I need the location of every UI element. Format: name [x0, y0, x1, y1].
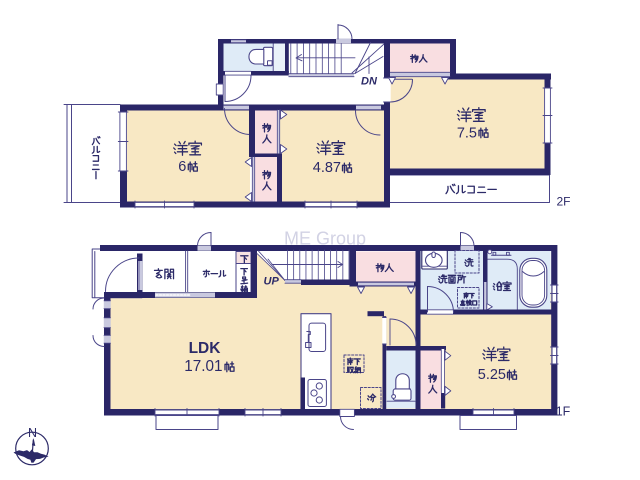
svg-text:N: N [28, 426, 37, 440]
svg-text:LDK: LDK [189, 340, 222, 357]
svg-text:1F: 1F [556, 404, 571, 418]
svg-text:DN: DN [361, 75, 378, 87]
svg-text:7.5: 7.5 [457, 126, 477, 142]
svg-text:5.25: 5.25 [478, 367, 506, 383]
svg-text:2F: 2F [556, 194, 570, 208]
svg-text:17.01: 17.01 [184, 358, 222, 375]
svg-text:4.87: 4.87 [313, 160, 341, 176]
svg-text:UP: UP [264, 275, 280, 287]
svg-text:6: 6 [178, 159, 186, 175]
